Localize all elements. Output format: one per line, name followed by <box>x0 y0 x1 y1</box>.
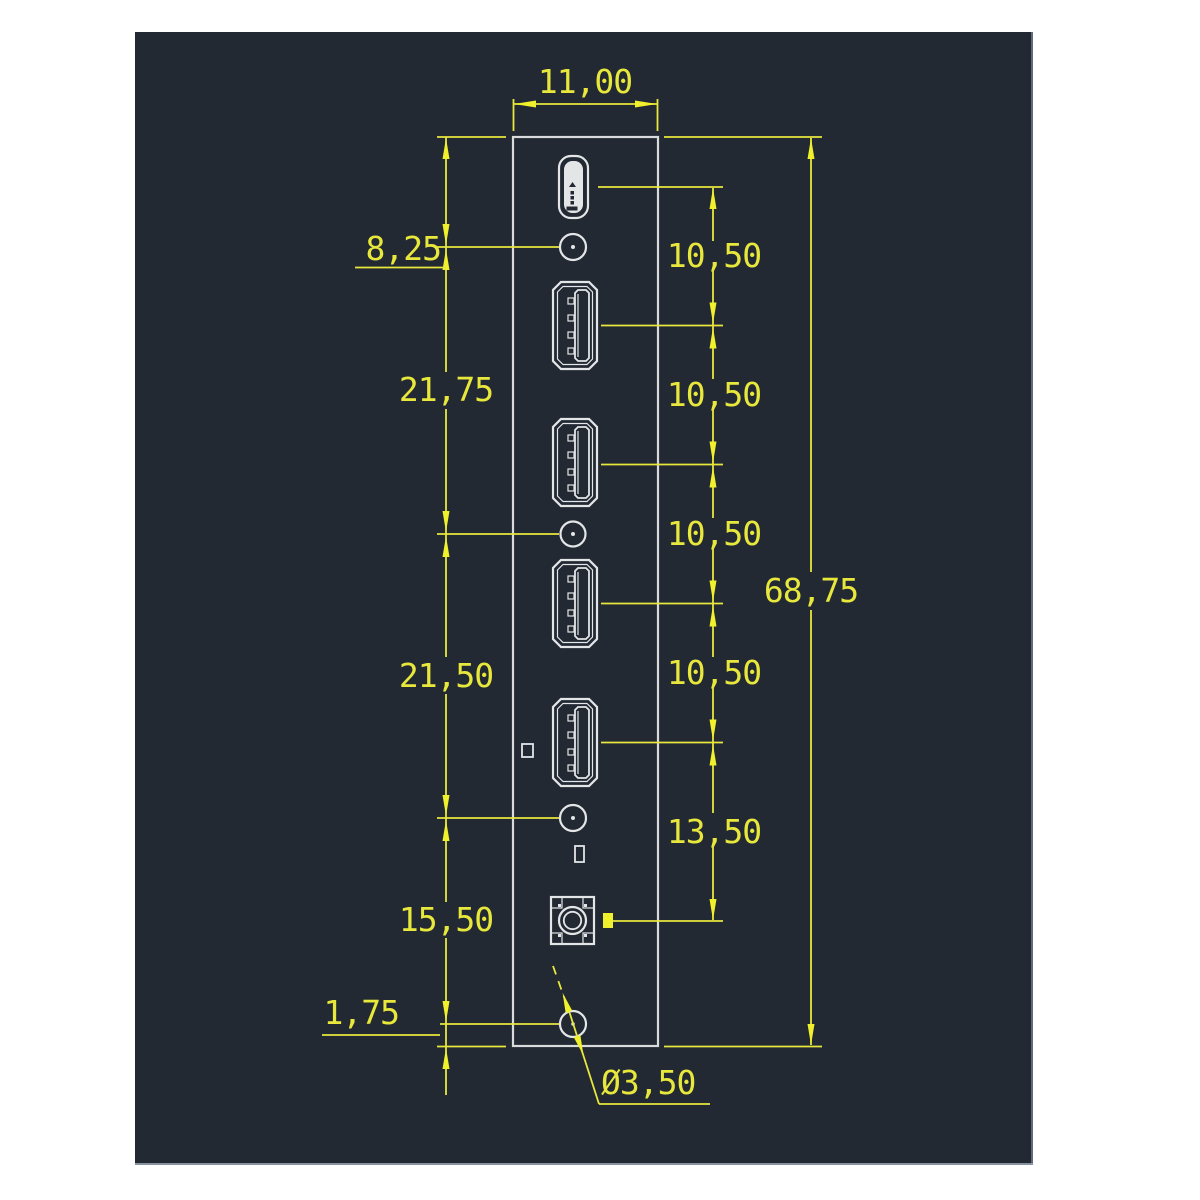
dim-left-15-50: 15,50 <box>399 900 493 939</box>
dim-right-13-50: 13,50 <box>667 812 761 851</box>
dim-top-width-label: 11,00 <box>538 62 632 101</box>
dim-left-1-75: 1,75 <box>324 993 399 1032</box>
button-extension-marker <box>603 913 613 928</box>
dim-left-21-50: 21,50 <box>399 656 493 695</box>
dim-right-10-50-b: 10,50 <box>667 375 761 414</box>
page: 11,00 8,25 21,75 21,50 15,50 1,75 <box>0 0 1200 1200</box>
dim-right-10-50-c: 10,50 <box>667 514 761 553</box>
cad-drawing: 11,00 8,25 21,75 21,50 15,50 1,75 <box>0 0 1200 1200</box>
dim-hole-diameter: Ø3,50 <box>601 1063 695 1102</box>
dim-right-10-50-a: 10,50 <box>667 236 761 275</box>
dim-left-8-25: 8,25 <box>366 229 441 268</box>
dim-overall-height: 68,75 <box>764 571 858 610</box>
cad-canvas <box>135 32 1033 1165</box>
dim-right-10-50-d: 10,50 <box>667 653 761 692</box>
dim-left-21-75: 21,75 <box>399 370 493 409</box>
